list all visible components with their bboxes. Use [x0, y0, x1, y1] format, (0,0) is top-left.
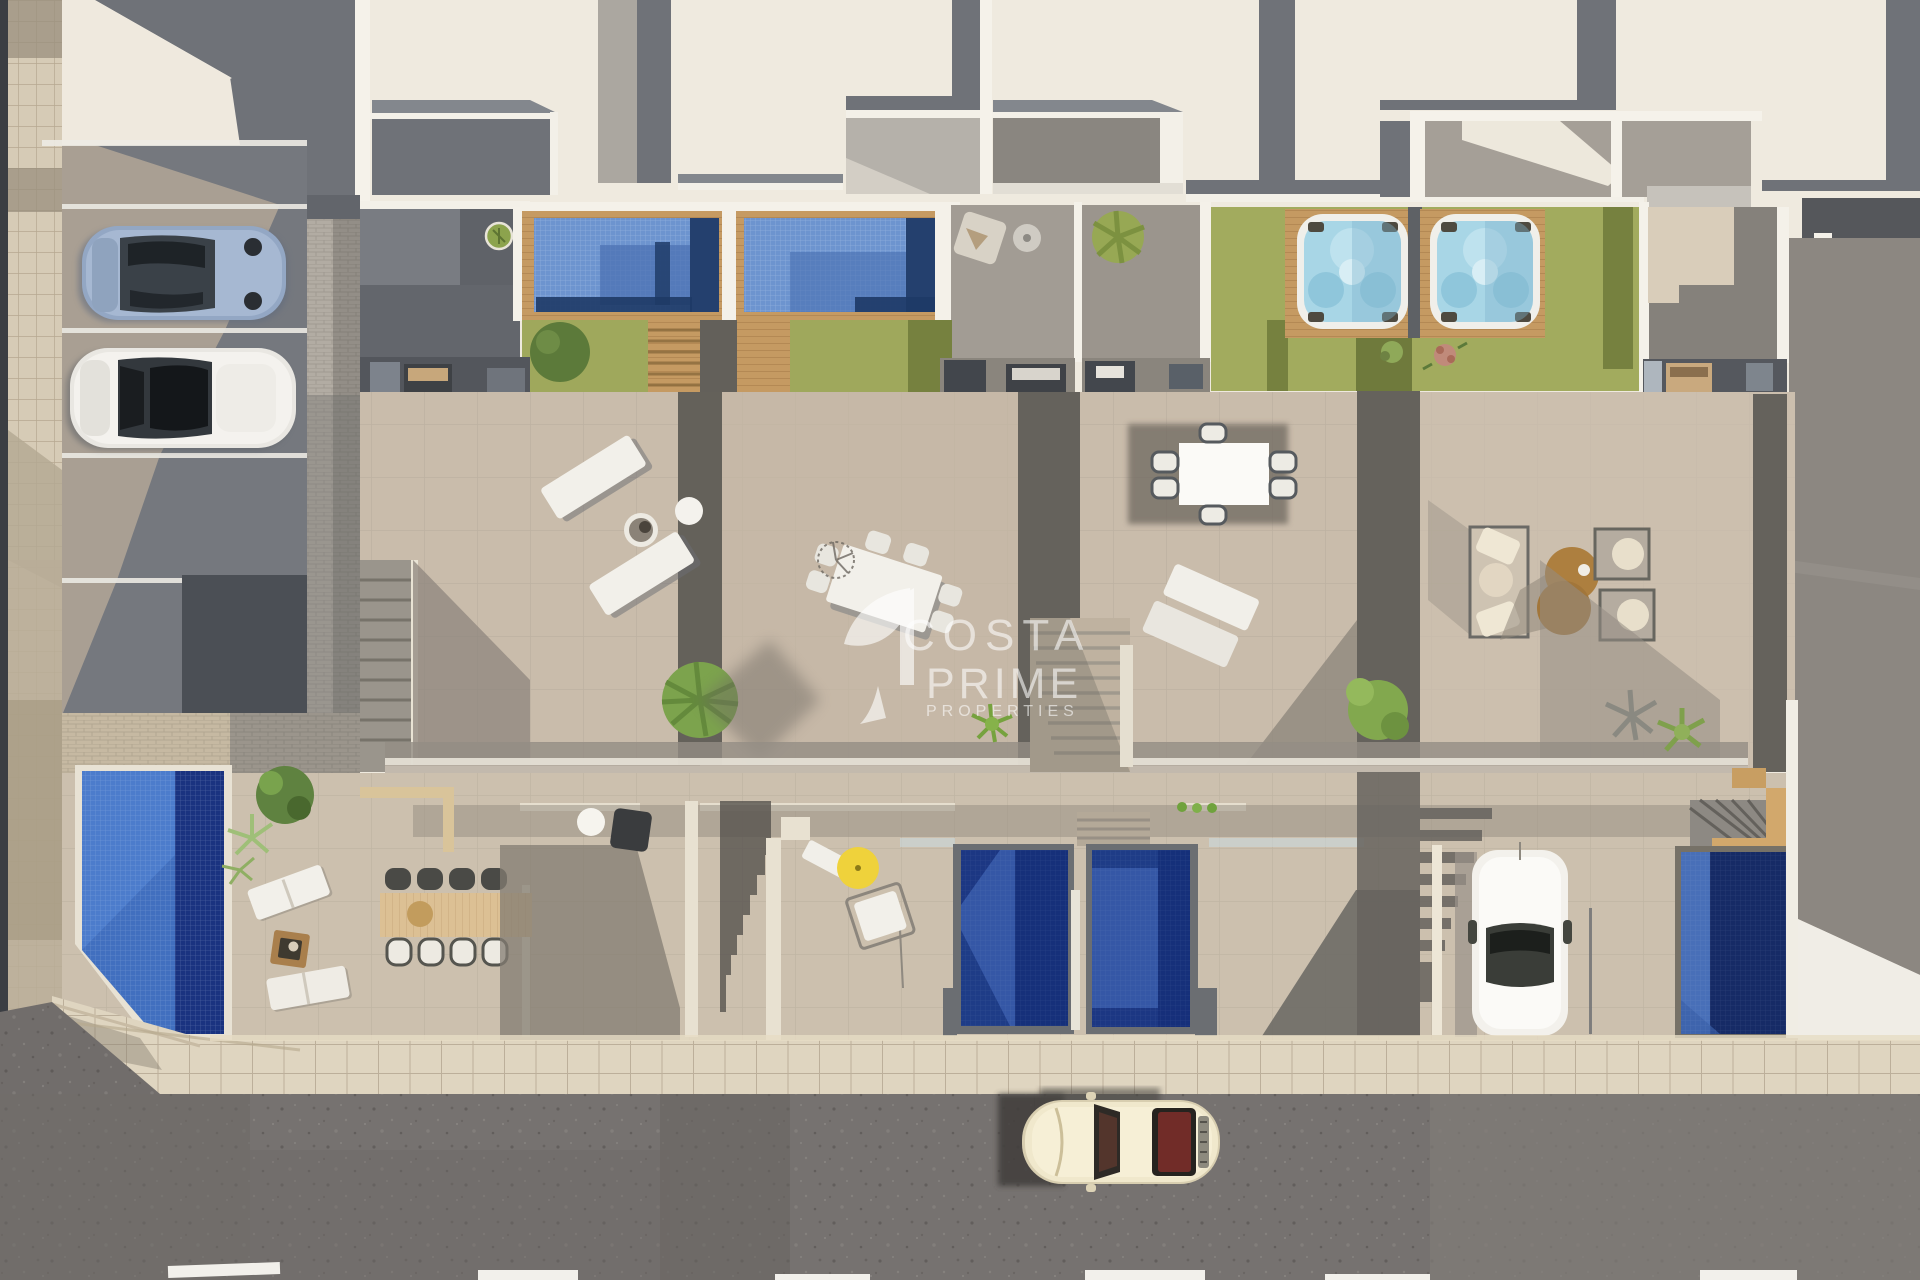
svg-text:COSTA: COSTA	[903, 611, 1091, 660]
svg-text:PRIME: PRIME	[926, 660, 1082, 708]
svg-text:PROPERTIES: PROPERTIES	[926, 703, 1079, 720]
